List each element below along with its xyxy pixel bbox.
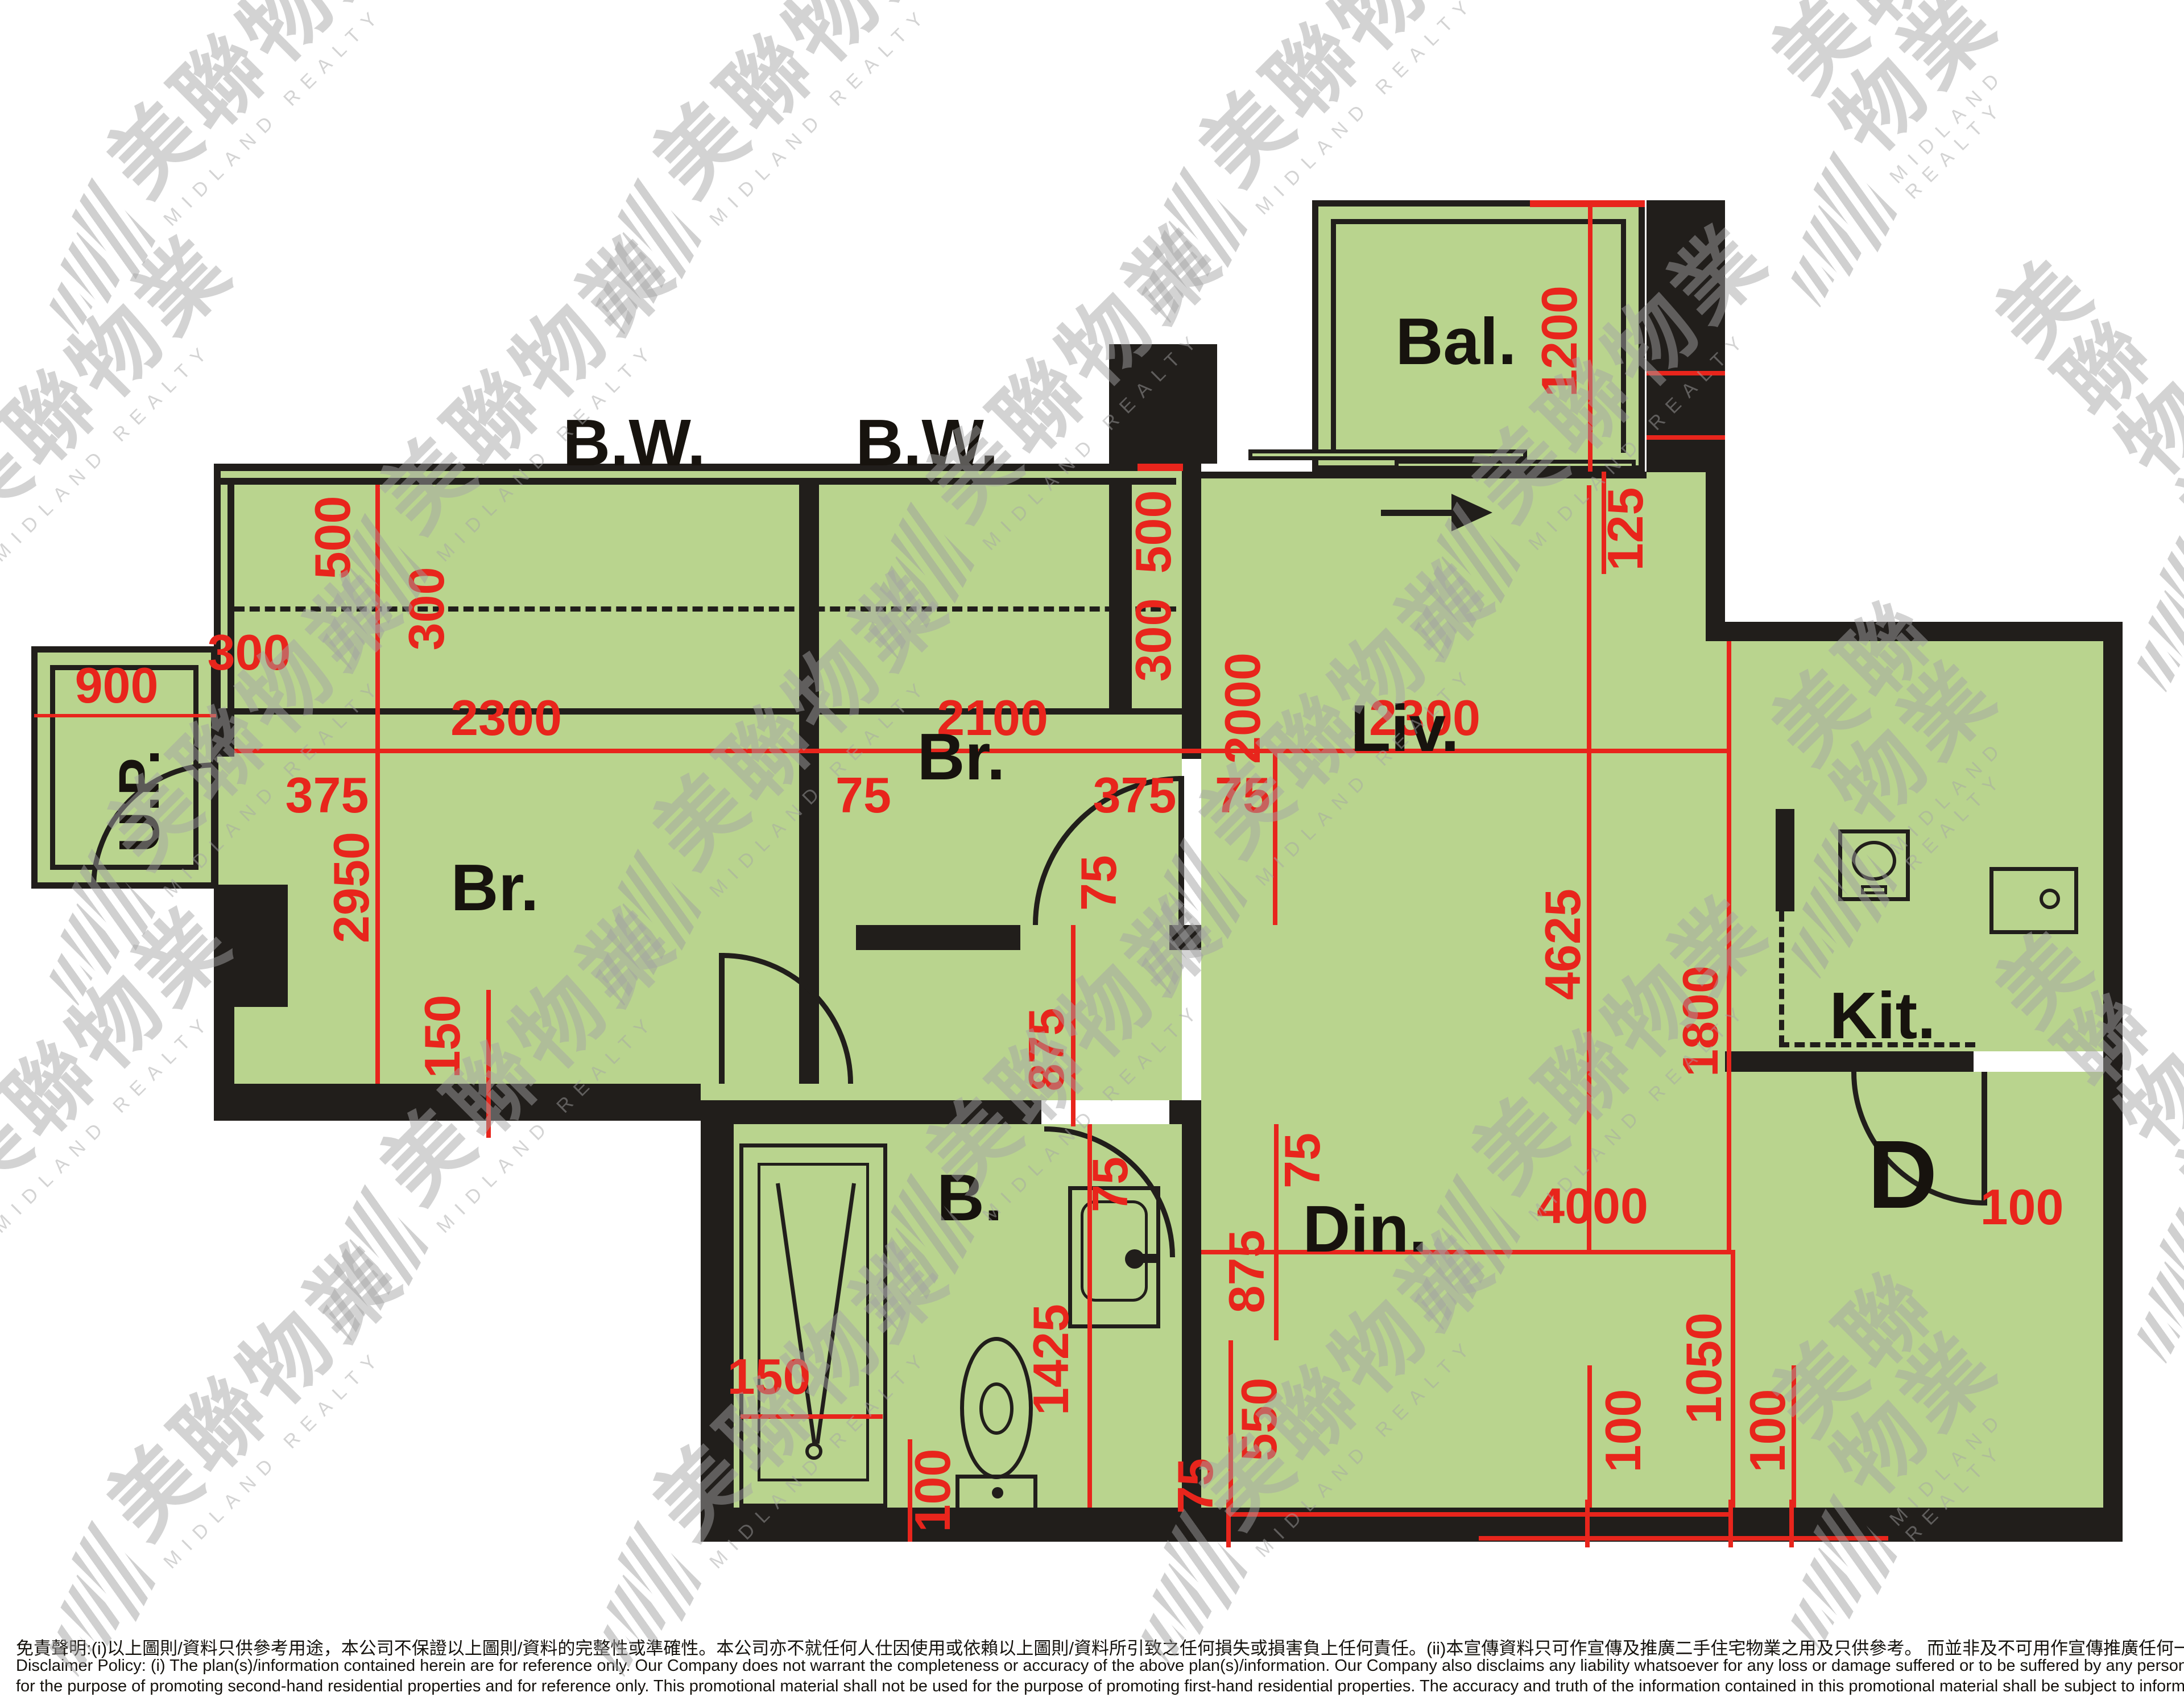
room-label-liv: Liv. (1350, 695, 1459, 761)
door-leaf-bedroom2 (1178, 776, 1184, 925)
dim-bath-clear: 100 (908, 1449, 958, 1533)
wall-bathroom-right (1182, 1100, 1201, 1508)
dim-wall-left: 375 (286, 770, 369, 820)
dim-bw-inner-left: 300 (402, 567, 452, 651)
dim-br1-depth: 2950 (326, 832, 377, 943)
dim-line (1587, 485, 1591, 1250)
wall-kitchen-bottom (1725, 1051, 1974, 1072)
dim-din-inset: 875 (1222, 1230, 1272, 1314)
balcony-sliding-door (1248, 449, 1527, 460)
dim-line (486, 990, 491, 1138)
wall-dim-tick (1226, 1500, 1231, 1547)
balcony-sliding-door (1395, 460, 1636, 470)
wall-dim-overlay (1647, 371, 1725, 375)
wall-pillar (214, 885, 288, 1007)
room-label-bath: B. (937, 1165, 1003, 1231)
dim-line (1201, 1250, 1731, 1254)
room-label-kit: Kit. (1830, 982, 1936, 1048)
dim-br2-depth: 2000 (1218, 653, 1268, 764)
wall (856, 925, 1020, 950)
room-label-bal: Bal. (1396, 308, 1517, 374)
dim-bw-depth-right: 500 (1128, 490, 1178, 574)
wall-bathroom-left (701, 1124, 734, 1508)
entry-arrow-head (1451, 494, 1492, 531)
dim-liv-wall: 75 (1215, 770, 1271, 820)
dim-bw-depth-left: 500 (308, 496, 358, 580)
wall-dim-overlay (1647, 435, 1725, 440)
room-label-bw1: B.W. (562, 410, 705, 476)
washing-machine-drum (1852, 841, 1896, 881)
floor-area-living-dining (1201, 472, 1725, 1508)
dim-ent-clear-b: 100 (1743, 1389, 1793, 1473)
entrance-door-label: D (1868, 1126, 1938, 1223)
dim-door-width: 100 (1980, 1182, 2064, 1232)
room-label-din: Din. (1302, 1196, 1427, 1262)
room-label-br1: Br. (451, 854, 539, 920)
dim-bal-depth: 1200 (1534, 286, 1585, 397)
dim-line (1727, 641, 1731, 1250)
wall-dim-overlay (1228, 1512, 1732, 1517)
kitchen-counter-dashed (1779, 911, 1784, 1046)
dim-line (1588, 200, 1592, 472)
dim-partition: 75 (835, 770, 891, 820)
wall-kitchen-right (2103, 641, 2123, 1508)
dim-kit-depth: 1800 (1676, 965, 1726, 1077)
washing-machine-vent (1861, 885, 1887, 894)
kitchen-sink-drain (2040, 889, 2060, 909)
dim-din-width: 4000 (1537, 1181, 1648, 1231)
entry-arrow-icon (1381, 510, 1455, 516)
wall (214, 1007, 234, 1084)
wall-column (1109, 344, 1217, 464)
dim-din-wall: 75 (1277, 1133, 1327, 1188)
dim-line (1273, 749, 1277, 925)
wall-dim-tick (1728, 1500, 1733, 1547)
dim-shower-width: 150 (727, 1352, 811, 1402)
wall-kitchen-top (1725, 622, 2123, 641)
dim-bw-inner-right: 300 (1128, 598, 1178, 682)
room-label-up: U.P. (111, 749, 168, 853)
wall-dim-overlay (1530, 200, 1645, 207)
wall-living-top (1201, 472, 1647, 478)
dim-corridor-wall: 75 (1074, 855, 1124, 911)
wall-balcony-column (1647, 200, 1725, 472)
basin-faucet-stem (1141, 1254, 1157, 1263)
dim-line (1587, 1365, 1592, 1508)
dim-ent-width: 1050 (1679, 1312, 1729, 1424)
dim-line (741, 1414, 883, 1419)
dim-wall-thick: 150 (417, 995, 468, 1079)
dim-bath-wall: 75 (1170, 1458, 1221, 1514)
dim-corridor: 875 (1021, 1008, 1072, 1092)
wall-dim-tick (1585, 1500, 1590, 1547)
dim-line (375, 485, 380, 1084)
toilet-inner (979, 1382, 1014, 1435)
toilet-button (992, 1487, 1003, 1498)
dim-livdin-depth: 4625 (1538, 889, 1588, 1000)
dim-br1-width: 2300 (450, 693, 562, 743)
wall-dim-tick (1789, 1500, 1794, 1547)
wall (1182, 458, 1201, 759)
wall (701, 1100, 1041, 1124)
wall (1776, 809, 1794, 911)
door-leaf-bedroom1 (719, 953, 725, 1084)
room-label-br2: Br. (917, 724, 1006, 790)
wall (214, 708, 234, 757)
dim-up-width: 900 (75, 660, 159, 711)
dim-bath-length: 1425 (1026, 1304, 1076, 1415)
dim-ent-clear-a: 100 (1598, 1389, 1648, 1473)
wall (1706, 472, 1725, 641)
shower-drain (805, 1443, 822, 1460)
floor-plan: 300 2300 2100 375 75 375 2300 75 900 400… (0, 0, 2184, 1701)
wall-dim-overlay (1479, 1536, 1888, 1541)
dim-edge-left: 300 (208, 627, 291, 678)
dim-basin-width: 75 (1085, 1157, 1135, 1212)
kitchen-sink-icon (1989, 867, 2078, 934)
dim-bal-edge: 125 (1600, 488, 1651, 571)
wall-dim-overlay (1137, 464, 1183, 471)
wall (214, 1084, 701, 1121)
door-leaf-utility-platform (213, 762, 218, 887)
room-label-bw2: B.W. (855, 410, 998, 476)
dim-line (34, 714, 216, 717)
dim-din-bottom: 550 (1234, 1378, 1284, 1461)
wall (1169, 925, 1201, 950)
dim-wall-right: 375 (1093, 770, 1177, 820)
